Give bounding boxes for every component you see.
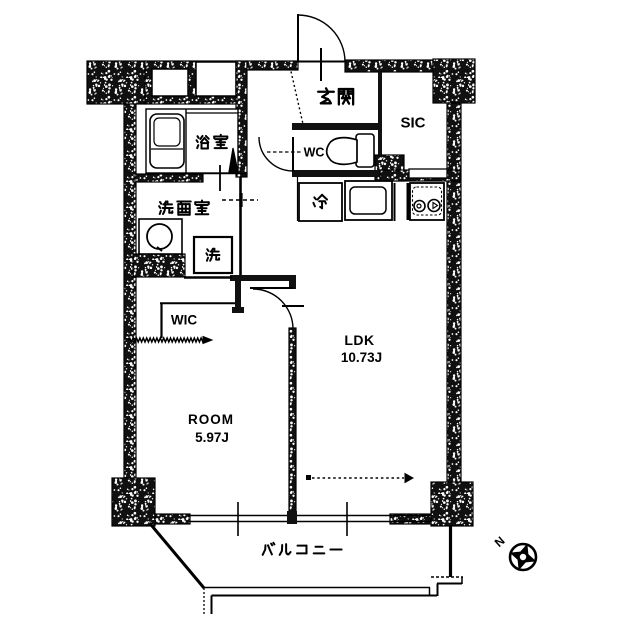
- svg-text:SIC: SIC: [400, 115, 425, 132]
- svg-text:LDK: LDK: [344, 332, 374, 348]
- svg-text:10.73J: 10.73J: [341, 350, 382, 365]
- svg-text:WIC: WIC: [171, 313, 197, 328]
- svg-text:WC: WC: [304, 146, 325, 160]
- svg-text:ROOM: ROOM: [188, 412, 234, 427]
- svg-text:5.97J: 5.97J: [195, 430, 229, 445]
